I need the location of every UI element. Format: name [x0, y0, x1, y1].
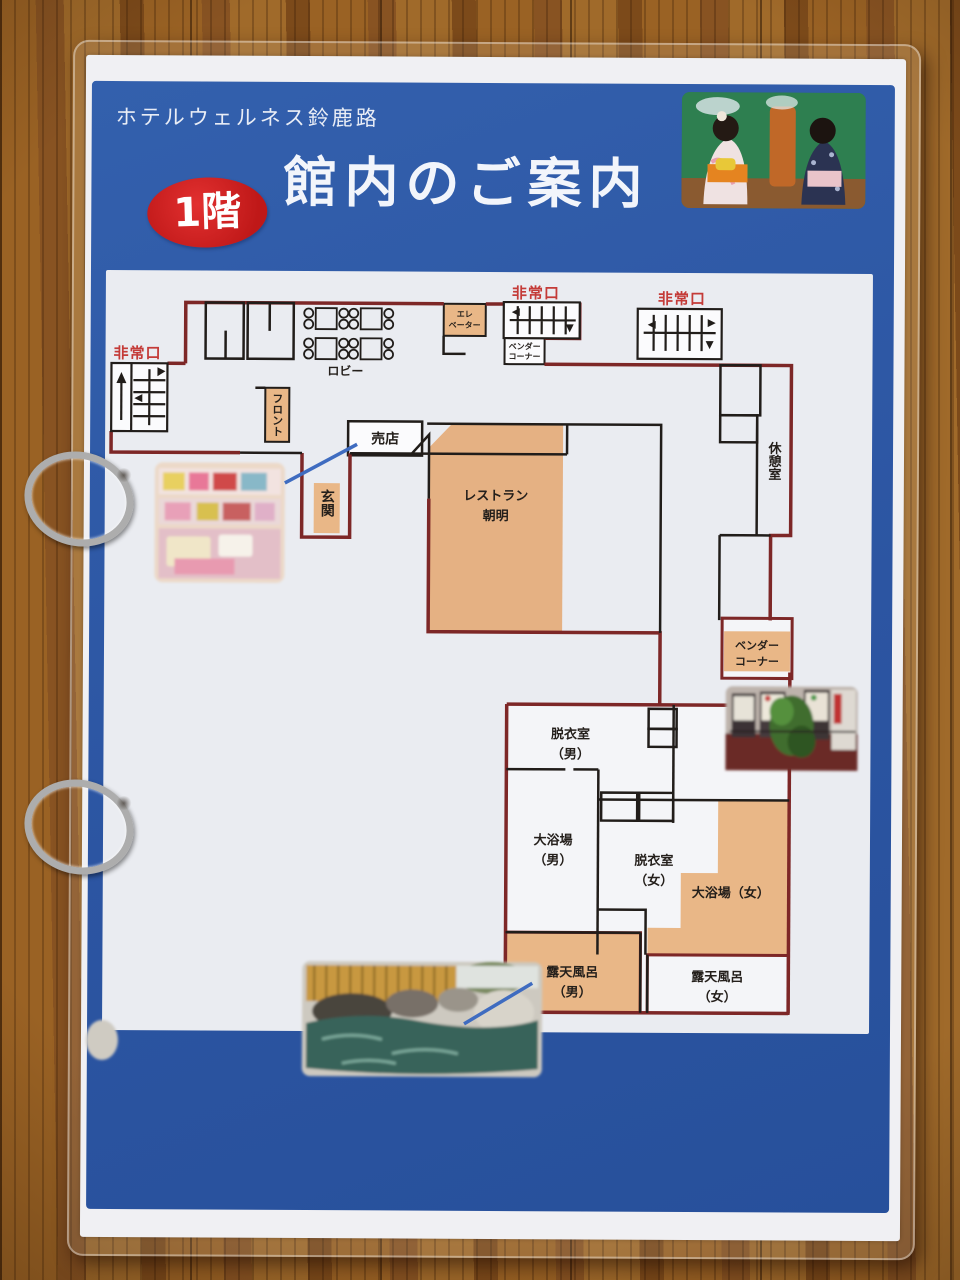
stairs-right: [638, 309, 722, 359]
vendor-small-label-2: コーナー: [509, 352, 541, 361]
connector-shop-photo: [285, 444, 357, 483]
changing-women-label-2: （女）: [634, 873, 673, 889]
emergency-exit-top-label: 非常口: [512, 284, 560, 302]
restaurant-label-1: レストラン: [463, 489, 528, 504]
elevator-label-2: ベーター: [449, 320, 481, 330]
floorplan-map-area: 非常口 非常口 非常口 ロビー エレ ベーター ベンダー コーナー フロント 売…: [102, 270, 873, 1034]
plastic-sleeve: ホテルウェルネス鈴鹿路 館内のご案内 1階: [67, 40, 921, 1260]
open-air-women-label-1: 露天風呂: [691, 970, 743, 985]
entrance-label: 玄関: [319, 488, 335, 518]
elevator-label-1: エレ: [457, 310, 473, 319]
shop-display-photo: [154, 462, 285, 583]
punch-hole-bottom: [116, 796, 132, 810]
bath-men-label-2: （男）: [533, 852, 572, 868]
changing-women-label-1: 脱衣室: [634, 853, 673, 869]
vending-machines-photo: [725, 686, 857, 771]
open-air-women-label-2: （女）: [698, 989, 737, 1005]
changing-men-label-2: （男）: [551, 746, 590, 762]
vendor-corner-label-1: ベンダー: [735, 638, 779, 652]
shop-label: 売店: [371, 430, 399, 447]
stairs-top: [504, 302, 580, 338]
open-air-men-label-1: 露天風呂: [546, 965, 598, 980]
vendor-small-label-1: ベンダー: [509, 341, 541, 351]
lobby-label: ロビー: [327, 363, 363, 378]
vendor-corner-label-2: コーナー: [735, 655, 779, 668]
punch-hole-top: [116, 468, 132, 482]
kimono-guests-photo: [681, 92, 866, 209]
open-air-men-label-2: （男）: [553, 984, 592, 1000]
kimono-photo-scene: [681, 92, 866, 209]
bath-women-label: 大浴場（女）: [692, 885, 770, 901]
floorplan: 非常口 非常口 非常口 ロビー エレ ベーター ベンダー コーナー フロント 売…: [102, 270, 873, 1034]
lobby-tables: [304, 308, 393, 359]
lounge-label: 休憩室: [765, 441, 782, 482]
emergency-exit-left-label: 非常口: [114, 344, 162, 362]
bath-men-label-1: 大浴場: [533, 832, 572, 848]
hotel-name: ホテルウェルネス鈴鹿路: [116, 101, 380, 132]
paper-sheet: ホテルウェルネス鈴鹿路 館内のご案内 1階: [80, 55, 906, 1241]
stairs-left: [111, 363, 167, 431]
page-title: 館内のご案内: [283, 138, 649, 219]
front-desk-label: フロント: [271, 393, 284, 437]
changing-men-label-1: 脱衣室: [551, 726, 590, 742]
restaurant-label-2: 朝明: [483, 508, 509, 524]
emergency-exit-right-label: 非常口: [658, 290, 706, 308]
room-fills: [262, 303, 794, 1014]
